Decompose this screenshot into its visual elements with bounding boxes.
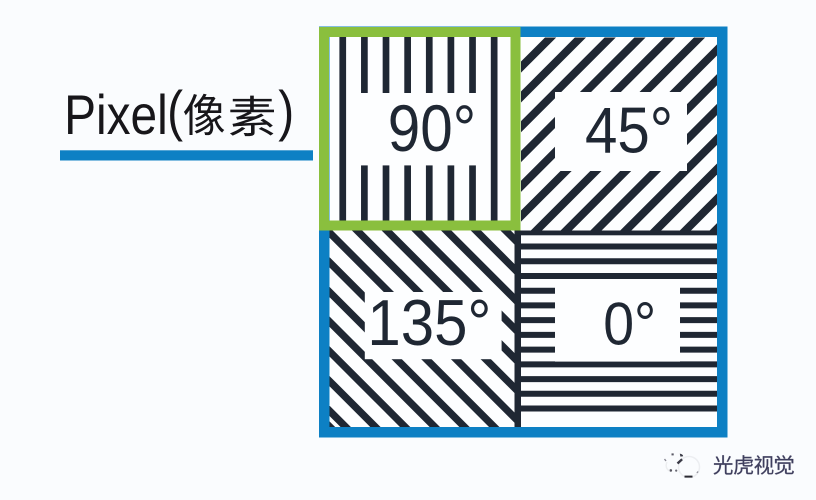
svg-text:(: (	[167, 80, 183, 142]
svg-text:90°: 90°	[388, 92, 476, 166]
svg-text:45°: 45°	[585, 93, 673, 166]
svg-text:0°: 0°	[603, 290, 656, 358]
svg-text:): )	[278, 80, 294, 142]
svg-text:135°: 135°	[367, 287, 491, 359]
svg-text:Pixel: Pixel	[64, 84, 168, 146]
